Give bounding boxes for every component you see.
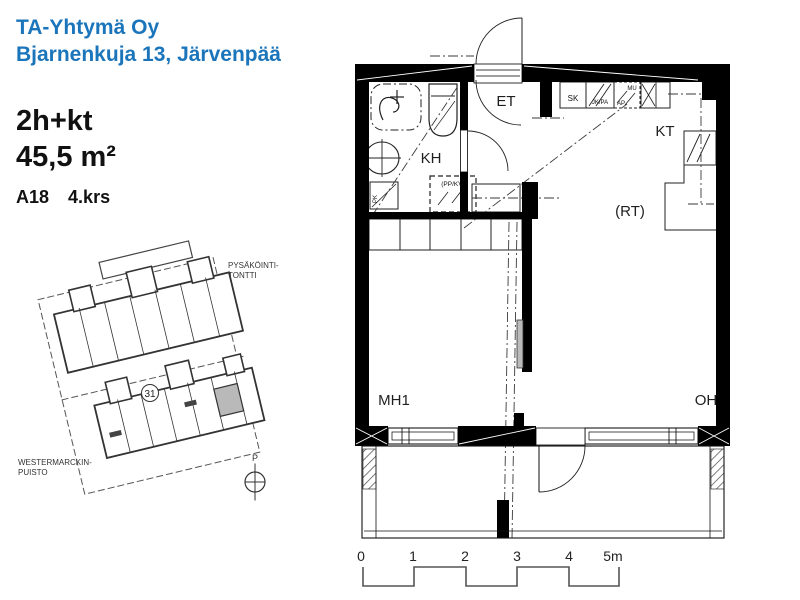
washer-label: PK: [373, 195, 379, 203]
room-labels: ET KH KT (RT) MH1 OH: [378, 93, 717, 409]
park-label-line2: PUISTO: [18, 468, 48, 477]
room-label-kitchen: KT: [655, 123, 674, 140]
scale-tick-5: 5m: [603, 548, 622, 564]
washing-machine: PK: [370, 182, 398, 209]
park-label-line1: WESTERMARCKIN-: [18, 458, 92, 467]
compass-letter: P: [252, 453, 258, 463]
toilet: [429, 84, 457, 136]
apartment-floor: 4.krs: [68, 187, 110, 207]
plot-number: 31: [144, 389, 156, 400]
company-name: TA-Yhtymä Oy: [16, 14, 346, 41]
kitchen-right-cabinet: [665, 131, 716, 230]
window-bedroom: [388, 428, 458, 444]
label-cleaning-closet: SK: [568, 94, 579, 103]
scale-bar: 0 1 2 3 4 5m: [357, 548, 623, 586]
shower: [371, 84, 421, 130]
parking-label-line1: PYSÄKÖINTI-: [228, 261, 279, 270]
site-building-lower: [89, 346, 264, 458]
apartment-unit: A18: [16, 187, 49, 207]
room-label-living: OH: [695, 392, 718, 409]
room-label-entry: ET: [496, 93, 515, 110]
scale-bar-line: [363, 567, 619, 586]
site-building-upper: [48, 249, 243, 373]
label-microwave: MU: [627, 86, 636, 92]
scale-tick-0: 0: [357, 548, 365, 564]
address: Bjarnenkuja 13, Järvenpää: [16, 41, 346, 68]
scale-tick-2: 2: [461, 548, 469, 564]
parking-label-line2: TONTTI: [228, 271, 257, 280]
room-label-bathroom: KH: [421, 150, 442, 167]
info-panel: TA-Yhtymä Oy Bjarnenkuja 13, Järvenpää 2…: [16, 14, 346, 208]
site-plan: 31 PYSÄKÖINTI- TONTTI WESTERMARCKIN- PUI…: [18, 233, 279, 500]
scale-tick-3: 3: [513, 548, 521, 564]
apartment-area: 45,5 m²: [16, 139, 346, 175]
laundry-reservation: (PP/KV): [430, 176, 476, 212]
floor-plan: PK (PP/KV): [355, 18, 730, 540]
sliding-door: [517, 320, 523, 368]
scale-tick-1: 1: [409, 548, 417, 564]
apartment-unit-row: A18 4.krs: [16, 187, 346, 208]
compass-icon: P: [245, 453, 265, 500]
room-label-dining: (RT): [615, 203, 645, 220]
label-dishwasher: AP: [617, 101, 625, 107]
label-fridge: JK/PA: [592, 100, 608, 106]
fixtures: PK (PP/KV): [363, 82, 716, 250]
wardrobes: [369, 219, 522, 250]
page: TA-Yhtymä Oy Bjarnenkuja 13, Järvenpää 2…: [0, 0, 800, 600]
apartment-type: 2h+kt: [16, 103, 346, 139]
bathroom-door: [461, 130, 509, 172]
balcony-door: [536, 428, 585, 492]
room-label-bedroom: MH1: [378, 392, 410, 409]
scale-tick-4: 4: [565, 548, 573, 564]
window-living: [585, 428, 698, 444]
